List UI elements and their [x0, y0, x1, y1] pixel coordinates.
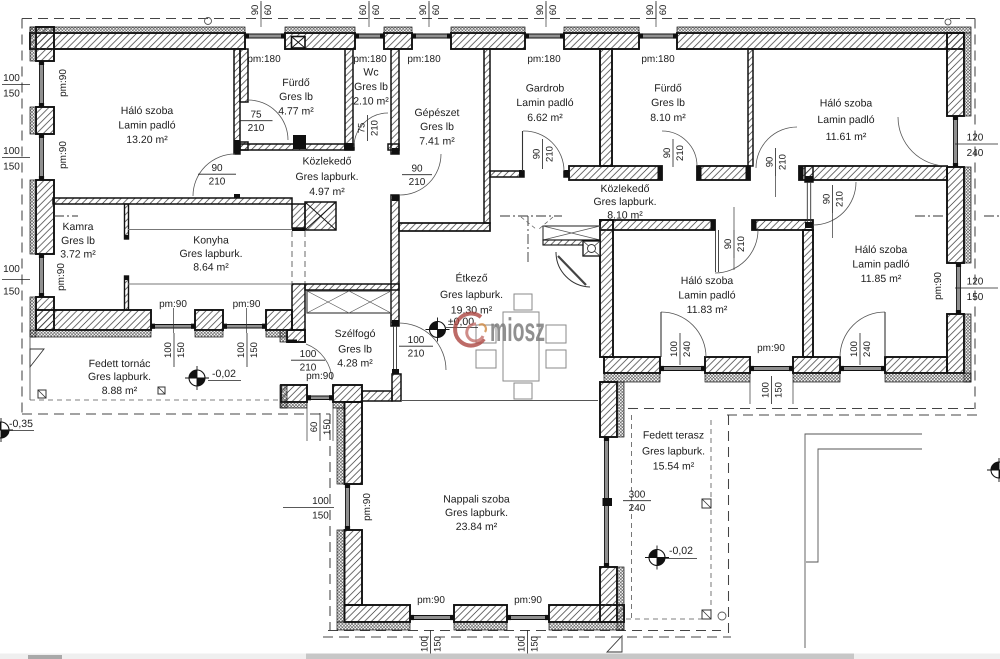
- svg-text:210: 210: [209, 177, 226, 188]
- svg-text:-0,02: -0,02: [212, 368, 236, 380]
- svg-text:-0,35: -0,35: [9, 418, 33, 430]
- svg-text:Nappali szoba: Nappali szoba: [443, 494, 510, 506]
- svg-text:4.77 m²: 4.77 m²: [278, 106, 314, 118]
- svg-text:Háló szoba: Háló szoba: [121, 105, 174, 117]
- svg-text:Lamin padló: Lamin padló: [817, 114, 874, 126]
- svg-text:300: 300: [629, 490, 646, 501]
- svg-text:Lamin padló: Lamin padló: [118, 120, 175, 132]
- svg-text:Gres lb: Gres lb: [420, 121, 454, 133]
- svg-text:pm:90: pm:90: [514, 595, 542, 606]
- svg-text:100: 100: [408, 335, 425, 346]
- svg-text:150: 150: [529, 636, 540, 652]
- svg-text:Étkező: Étkező: [455, 272, 487, 285]
- svg-text:210: 210: [409, 177, 426, 188]
- svg-text:pm:180: pm:180: [527, 54, 561, 65]
- svg-text:Háló szoba: Háló szoba: [681, 275, 734, 287]
- svg-text:100: 100: [3, 73, 20, 84]
- svg-text:Háló szoba: Háló szoba: [855, 244, 908, 256]
- svg-text:210: 210: [369, 120, 380, 136]
- svg-text:210: 210: [834, 191, 845, 207]
- svg-text:Fedett terasz: Fedett terasz: [643, 430, 704, 442]
- svg-text:Közlekedő: Közlekedő: [302, 156, 351, 168]
- svg-text:60: 60: [548, 5, 559, 16]
- svg-text:Fedett tornác: Fedett tornác: [89, 358, 151, 370]
- svg-text:100: 100: [300, 349, 317, 360]
- svg-text:Wc: Wc: [363, 67, 378, 79]
- svg-text:150: 150: [176, 342, 187, 358]
- svg-text:150: 150: [3, 89, 20, 100]
- svg-text:11.83 m²: 11.83 m²: [687, 304, 728, 316]
- svg-text:Lamin padló: Lamin padló: [852, 259, 909, 271]
- svg-text:120: 120: [967, 277, 984, 288]
- svg-text:2.10 m²: 2.10 m²: [353, 96, 389, 108]
- svg-text:pm:90: pm:90: [417, 595, 445, 606]
- svg-text:150: 150: [3, 162, 20, 173]
- svg-text:60: 60: [371, 5, 382, 16]
- svg-text:100: 100: [163, 342, 174, 358]
- svg-text:pm:180: pm:180: [247, 54, 281, 65]
- svg-text:pm:90: pm:90: [933, 272, 944, 300]
- svg-text:Gres lb: Gres lb: [61, 235, 95, 247]
- svg-text:100: 100: [3, 146, 20, 157]
- svg-text:Fürdő: Fürdő: [282, 77, 310, 89]
- svg-text:Háló szoba: Háló szoba: [820, 98, 873, 110]
- svg-text:60: 60: [431, 5, 442, 16]
- svg-text:210: 210: [777, 154, 788, 170]
- svg-text:240: 240: [862, 341, 873, 357]
- svg-text:15.54 m²: 15.54 m²: [653, 461, 695, 473]
- svg-text:210: 210: [736, 236, 747, 252]
- svg-text:100: 100: [760, 382, 771, 398]
- svg-text:Gres lapburk.: Gres lapburk.: [445, 507, 508, 519]
- svg-text:60: 60: [309, 422, 320, 433]
- svg-text:3.72 m²: 3.72 m²: [60, 249, 96, 261]
- svg-text:pm:90: pm:90: [58, 141, 69, 169]
- svg-text:pm:90: pm:90: [56, 263, 67, 291]
- svg-text:60: 60: [658, 5, 669, 16]
- svg-text:90: 90: [411, 164, 423, 175]
- svg-text:Gres lapburk.: Gres lapburk.: [179, 248, 242, 260]
- svg-text:60: 60: [358, 5, 369, 16]
- svg-text:90: 90: [764, 157, 775, 168]
- svg-text:90: 90: [211, 163, 223, 174]
- svg-text:90: 90: [723, 239, 734, 250]
- svg-text:7.41 m²: 7.41 m²: [419, 136, 455, 148]
- svg-text:4.97 m²: 4.97 m²: [309, 186, 345, 198]
- svg-text:Lamin padló: Lamin padló: [516, 97, 573, 109]
- svg-text:150: 150: [3, 287, 20, 298]
- svg-text:Gres lb: Gres lb: [651, 97, 685, 109]
- svg-text:100: 100: [3, 264, 20, 275]
- svg-text:-0,02: -0,02: [669, 545, 693, 557]
- svg-text:pm:90: pm:90: [58, 69, 69, 97]
- svg-text:210: 210: [408, 349, 425, 360]
- svg-text:90: 90: [535, 5, 546, 16]
- svg-text:Szélfogó: Szélfogó: [335, 328, 376, 340]
- svg-text:240: 240: [967, 148, 984, 159]
- svg-text:pm:90: pm:90: [757, 343, 785, 354]
- svg-text:120: 120: [967, 133, 984, 144]
- svg-text:6.62 m²: 6.62 m²: [527, 112, 563, 124]
- svg-text:miosz: miosz: [490, 311, 545, 348]
- svg-text:150: 150: [312, 511, 329, 522]
- svg-text:60: 60: [263, 5, 274, 16]
- svg-text:150: 150: [432, 636, 443, 652]
- svg-text:Gardrob: Gardrob: [526, 83, 565, 95]
- svg-text:Gres lb: Gres lb: [354, 81, 388, 93]
- svg-text:100: 100: [312, 496, 329, 507]
- svg-text:Gres lb: Gres lb: [338, 344, 372, 356]
- svg-text:Gres lapburk.: Gres lapburk.: [593, 196, 656, 208]
- svg-text:90: 90: [418, 5, 429, 16]
- svg-text:210: 210: [675, 145, 686, 161]
- svg-text:Gres lapburk.: Gres lapburk.: [295, 171, 358, 183]
- svg-text:Gres lapburk.: Gres lapburk.: [88, 371, 151, 383]
- svg-text:8.10 m²: 8.10 m²: [607, 210, 643, 222]
- svg-text:8.64 m²: 8.64 m²: [193, 262, 229, 274]
- svg-text:150: 150: [773, 382, 784, 398]
- svg-text:Gépészet: Gépészet: [415, 107, 460, 119]
- svg-text:Lamin padló: Lamin padló: [678, 290, 735, 302]
- svg-text:8.88 m²: 8.88 m²: [102, 385, 138, 397]
- svg-text:90: 90: [645, 5, 656, 16]
- svg-text:pm:180: pm:180: [407, 54, 441, 65]
- svg-text:Kamra: Kamra: [63, 221, 94, 233]
- svg-text:100: 100: [236, 342, 247, 358]
- svg-text:pm:180: pm:180: [353, 54, 387, 65]
- svg-text:210: 210: [544, 146, 555, 162]
- svg-text:4.28 m²: 4.28 m²: [337, 358, 373, 370]
- svg-text:11.85 m²: 11.85 m²: [861, 273, 902, 285]
- svg-text:Közlekedő: Közlekedő: [600, 183, 649, 195]
- svg-text:75: 75: [356, 123, 367, 134]
- svg-text:150: 150: [967, 292, 984, 303]
- svg-text:11.61 m²: 11.61 m²: [826, 131, 867, 143]
- svg-text:pm:180: pm:180: [641, 54, 675, 65]
- svg-text:Gres lb: Gres lb: [279, 91, 313, 103]
- svg-text:240: 240: [682, 341, 693, 357]
- svg-text:Fürdő: Fürdő: [654, 83, 682, 95]
- svg-text:23.84 m²: 23.84 m²: [456, 521, 498, 533]
- svg-text:100: 100: [849, 341, 860, 357]
- svg-text:90: 90: [250, 5, 261, 16]
- svg-text:210: 210: [248, 123, 265, 134]
- svg-text:8.10 m²: 8.10 m²: [650, 112, 686, 124]
- svg-text:150: 150: [322, 419, 333, 435]
- svg-text:13.20 m²: 13.20 m²: [126, 134, 168, 146]
- svg-text:Gres lapburk.: Gres lapburk.: [642, 446, 705, 458]
- svg-text:90: 90: [662, 148, 673, 159]
- svg-text:150: 150: [249, 342, 260, 358]
- svg-text:100: 100: [419, 636, 430, 652]
- svg-text:pm:90: pm:90: [362, 493, 373, 521]
- svg-text:100: 100: [669, 341, 680, 357]
- svg-text:Konyha: Konyha: [193, 235, 229, 247]
- svg-text:Gres lapburk.: Gres lapburk.: [440, 289, 503, 301]
- svg-text:90: 90: [531, 149, 542, 160]
- svg-text:240: 240: [629, 503, 646, 514]
- svg-text:100: 100: [516, 636, 527, 652]
- svg-text:210: 210: [300, 363, 317, 374]
- svg-text:90: 90: [821, 194, 832, 205]
- svg-text:75: 75: [250, 110, 262, 121]
